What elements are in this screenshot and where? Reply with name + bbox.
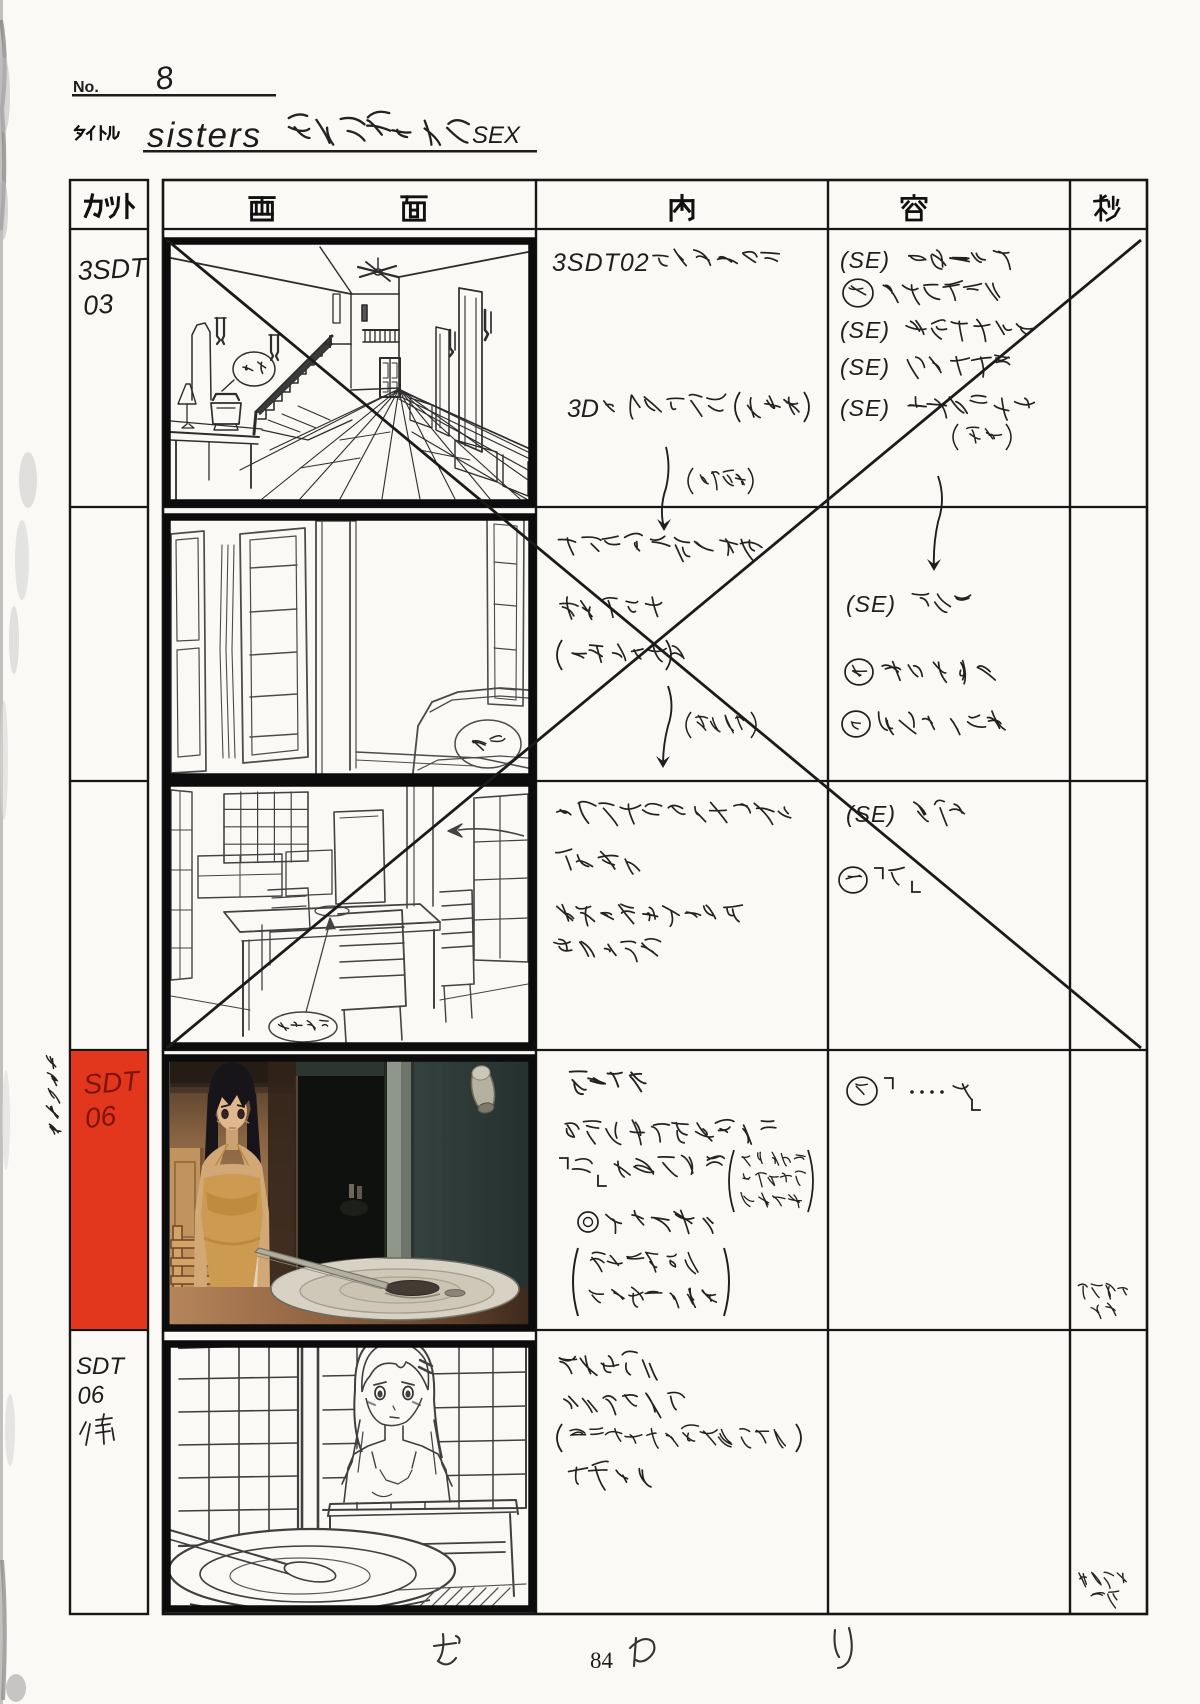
- svg-text:No.: No.: [73, 79, 99, 96]
- svg-text:06: 06: [83, 1100, 118, 1134]
- svg-text:sisters: sisters: [147, 116, 262, 155]
- svg-text:SDT: SDT: [82, 1065, 142, 1100]
- svg-text:84: 84: [590, 1648, 614, 1673]
- svg-text:(SE): (SE): [840, 317, 890, 343]
- svg-text:SEX: SEX: [472, 122, 521, 149]
- svg-text:06: 06: [77, 1381, 106, 1410]
- svg-text:3SDT: 3SDT: [77, 252, 150, 286]
- svg-text:SDT: SDT: [76, 1353, 126, 1380]
- svg-text:(SE): (SE): [840, 247, 890, 273]
- svg-text:(SE): (SE): [840, 395, 890, 421]
- svg-text:3D: 3D: [567, 395, 599, 423]
- svg-text:03: 03: [82, 288, 115, 321]
- svg-text:(SE): (SE): [840, 354, 890, 380]
- svg-text:3SDT02: 3SDT02: [552, 249, 650, 277]
- svg-text:(SE): (SE): [846, 591, 896, 617]
